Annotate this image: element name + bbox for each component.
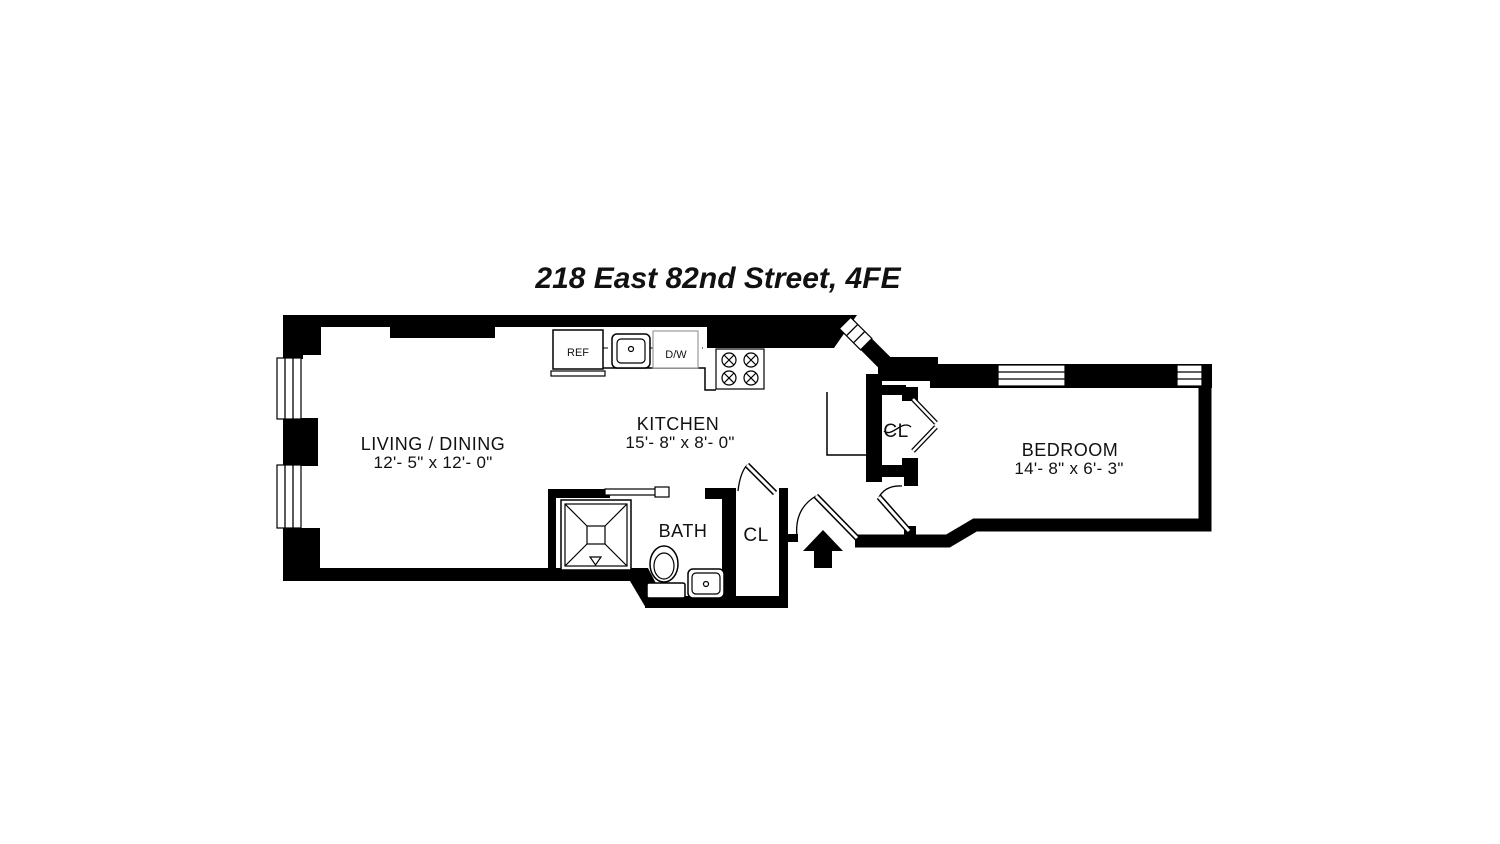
counter-edge	[603, 368, 716, 390]
refrigerator: REF	[551, 330, 605, 376]
floor-plan-drawing: REF D/W	[0, 0, 1500, 844]
bedroom-dims: 14'- 8" x 6'- 3"	[1014, 459, 1123, 478]
living-room-label-group: LIVING / DINING 12'- 5" x 12'- 0"	[361, 434, 506, 472]
kitchen-sink	[612, 334, 650, 368]
stove	[716, 349, 764, 389]
kitchen-label: KITCHEN	[637, 414, 720, 434]
floor-plan-page: REF D/W	[0, 0, 1500, 844]
burner	[744, 353, 758, 367]
kitchen-dims: 15'- 8" x 8'- 0"	[625, 433, 734, 452]
dishwasher: D/W	[653, 331, 698, 368]
living-room-label: LIVING / DINING	[361, 434, 506, 454]
bath-closet-door	[738, 465, 775, 493]
window-living-upper	[277, 358, 301, 419]
bath-sink	[688, 569, 724, 598]
toilet	[647, 546, 685, 598]
bedroom-label-group: BEDROOM 14'- 8" x 6'- 3"	[1014, 440, 1123, 478]
shower-door	[605, 487, 669, 497]
labels: 218 East 82nd Street, 4FE LIVING / DININ…	[361, 262, 1124, 546]
burner	[744, 371, 758, 385]
plan-title: 218 East 82nd Street, 4FE	[534, 262, 901, 295]
entry-arrow-icon	[803, 530, 843, 568]
kitchen-boundary-line	[827, 392, 866, 455]
entry-door	[797, 496, 857, 538]
kitchen-label-group: KITCHEN 15'- 8" x 8'- 0"	[625, 414, 734, 452]
burner	[722, 353, 736, 367]
bath-label: BATH	[659, 521, 708, 541]
dishwasher-label: D/W	[665, 349, 687, 361]
window-bedroom-wide	[998, 365, 1065, 386]
window-living-lower	[277, 465, 301, 528]
bedroom-closet-label: CL	[883, 421, 908, 442]
bedroom-label: BEDROOM	[1022, 440, 1119, 460]
refrigerator-label: REF	[567, 347, 589, 359]
window-bedroom-narrow	[1177, 365, 1202, 386]
bedroom-door	[879, 486, 909, 531]
shower	[561, 500, 631, 570]
burner	[722, 371, 736, 385]
living-room-dims: 12'- 5" x 12'- 0"	[373, 453, 492, 472]
window-diagonal	[839, 317, 893, 371]
bath-closet-label: CL	[743, 525, 768, 546]
